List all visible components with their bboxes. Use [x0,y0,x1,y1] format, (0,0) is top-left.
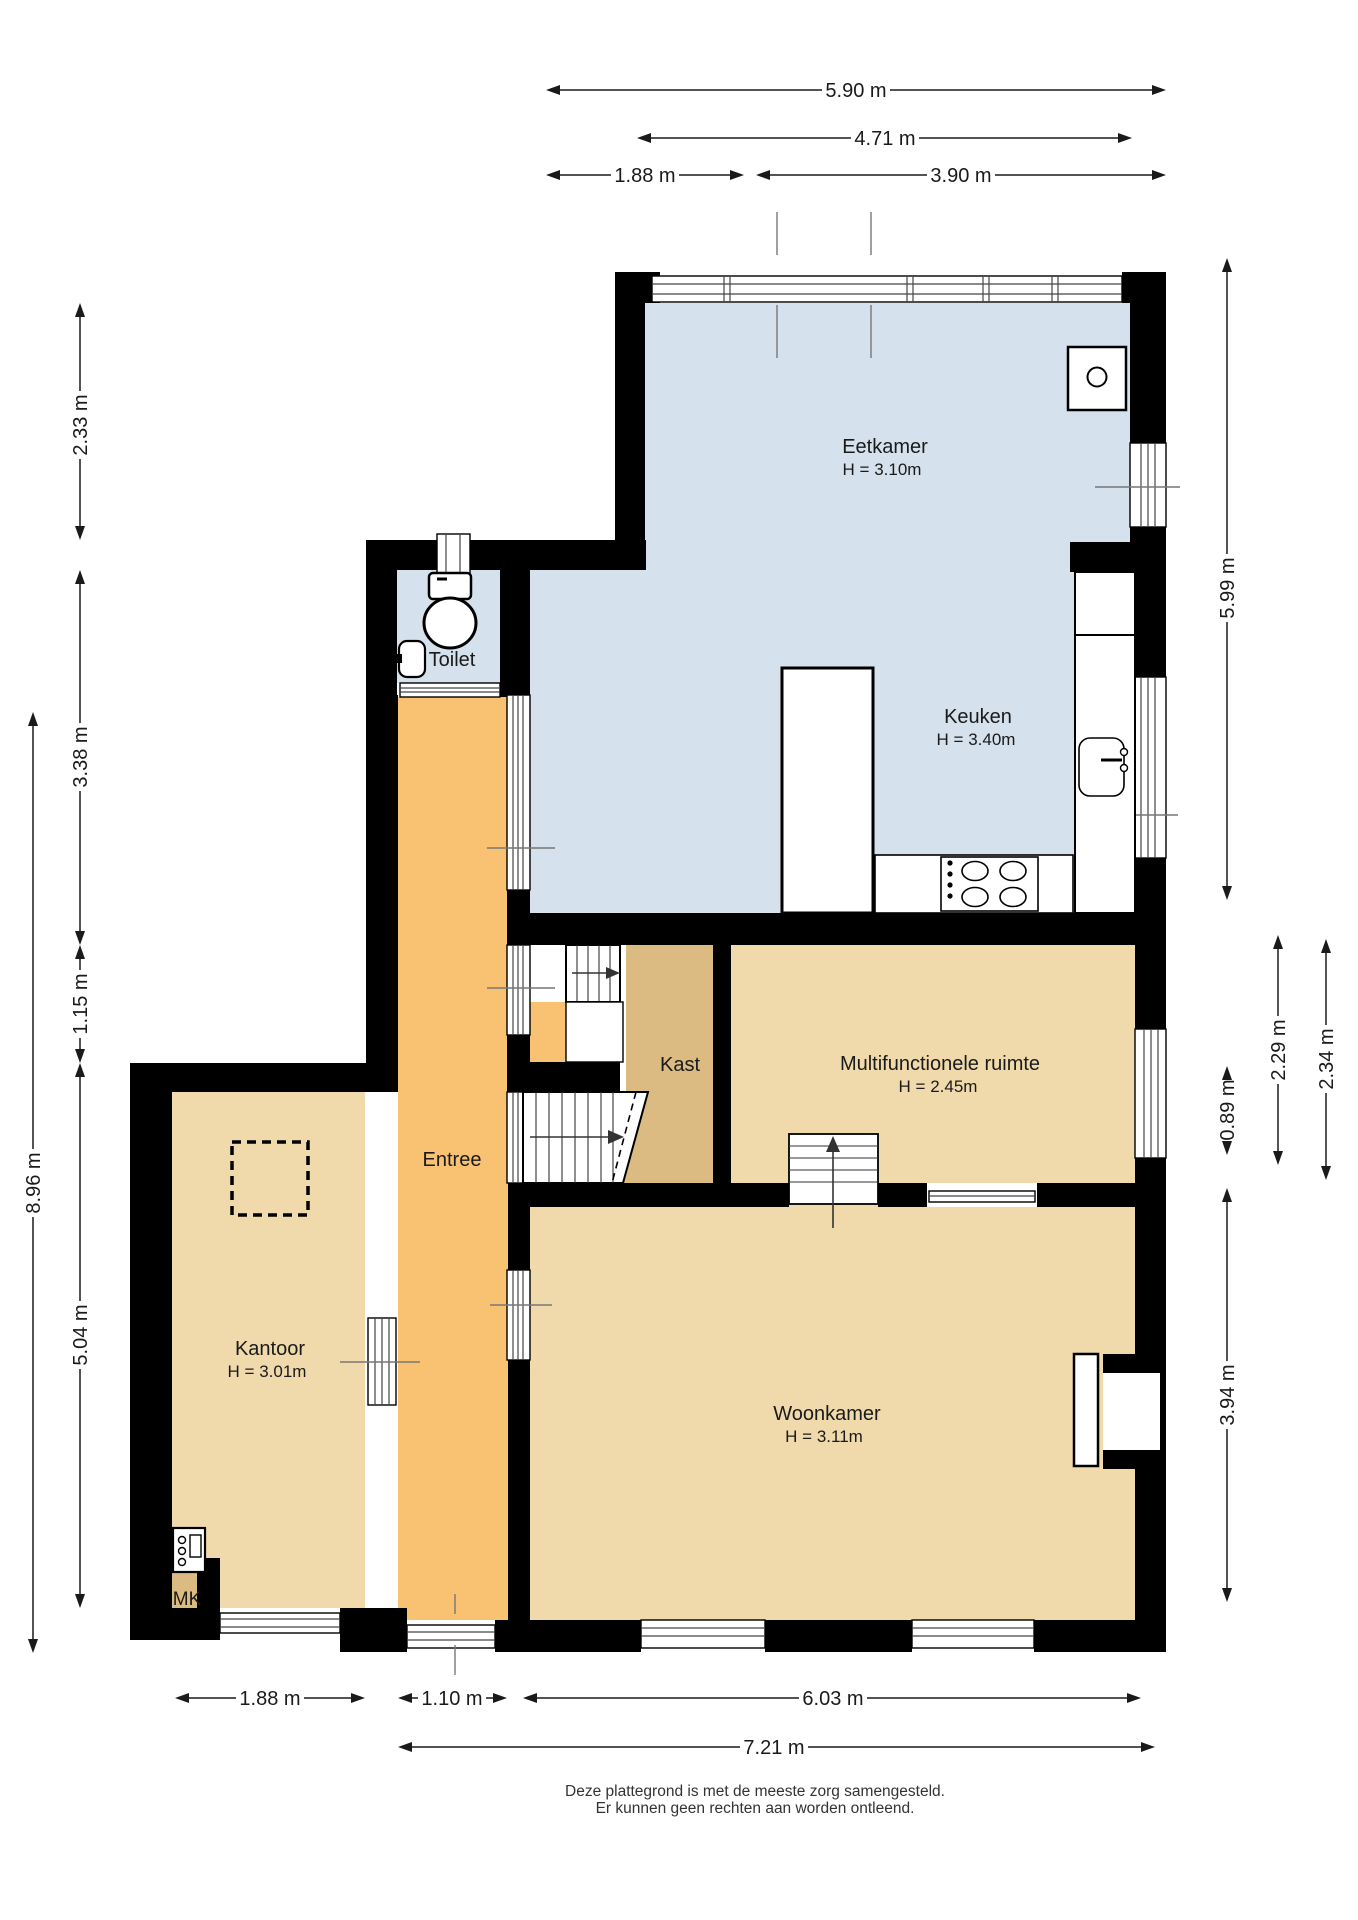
label-keuken-height: H = 3.40m [937,730,1016,749]
label-woonkamer: Woonkamer [773,1403,881,1425]
glass-entree-woonkamer [507,1270,530,1360]
label-multifunctionele-height: H = 2.45m [899,1077,978,1096]
meter-fixture [173,1528,205,1572]
footer-line-1: Deze plattegrond is met de meeste zorg s… [565,1783,945,1800]
window-woonkamer-bottom-left [641,1620,765,1648]
dimension-label: 3.90 m [930,165,991,187]
label-keuken: Keuken [944,706,1012,728]
dimension-label: 2.34 m [1316,1028,1338,1089]
dimension-label: 1.10 m [421,1688,482,1710]
label-woonkamer-height: H = 3.11m [785,1427,863,1446]
label-kast: Kast [660,1054,700,1076]
floorplan-canvas: Eetkamer H = 3.10m Keuken H = 3.40m Toil… [0,0,1358,1920]
label-kantoor-height: H = 3.01m [228,1362,307,1381]
toilet-fixture [424,573,476,648]
label-eetkamer-height: H = 3.10m [843,460,922,479]
window-multifunctionele-right [1135,1029,1166,1158]
label-eetkamer: Eetkamer [842,436,928,458]
dimension-label: 1.15 m [70,973,92,1034]
boiler-unit [1068,347,1126,410]
kitchen-hob [875,855,1073,913]
window-toilet [437,534,470,576]
dimension-label: 3.94 m [1217,1364,1239,1425]
dimension-label: 1.88 m [614,165,675,187]
label-entree: Entree [423,1149,482,1171]
footer-line-2: Er kunnen geen rechten aan worden ontlee… [596,1800,915,1817]
stairs-upper-flight [566,945,623,1062]
kitchen-island [782,668,873,913]
dimension-label: 0.89 m [1217,1079,1239,1140]
dimension-label: 8.96 m [23,1152,45,1213]
washbasin [396,641,425,677]
glass-entree-stairs-upper [507,945,530,1035]
glass-entree-keuken [507,695,530,890]
window-kantoor-bottom [220,1613,340,1633]
dimension-label: 5.90 m [825,80,886,102]
dimension-label: 4.71 m [854,128,915,150]
window-eetkamer-top [652,276,1122,302]
dimension-label: 1.88 m [239,1688,300,1710]
dimension-label: 5.99 m [1217,557,1239,618]
dimension-label: 6.03 m [802,1688,863,1710]
footer: Deze plattegrond is met de meeste zorg s… [565,1783,945,1817]
door-multifunctionele-woonkamer [927,1183,1037,1207]
dimension-label: 2.29 m [1268,1019,1290,1080]
label-multifunctionele: Multifunctionele ruimte [840,1053,1040,1075]
room-fills [172,303,1135,1620]
window-woonkamer-bottom-right [912,1620,1034,1648]
door-toilet [400,683,500,697]
kitchen-counter [1075,572,1135,913]
label-meterkast: MK [173,1589,202,1610]
dimension-label: 3.38 m [70,726,92,787]
window-eetkamer-right [1130,443,1166,527]
floorplan-page: Eetkamer H = 3.10m Keuken H = 3.40m Toil… [0,0,1358,1920]
label-toilet: Toilet [429,649,476,671]
dimension-label: 2.33 m [70,394,92,455]
label-kantoor: Kantoor [235,1338,305,1360]
window-entree-bottom [407,1625,495,1648]
dimension-label: 7.21 m [743,1737,804,1759]
dimension-label: 5.04 m [70,1304,92,1365]
